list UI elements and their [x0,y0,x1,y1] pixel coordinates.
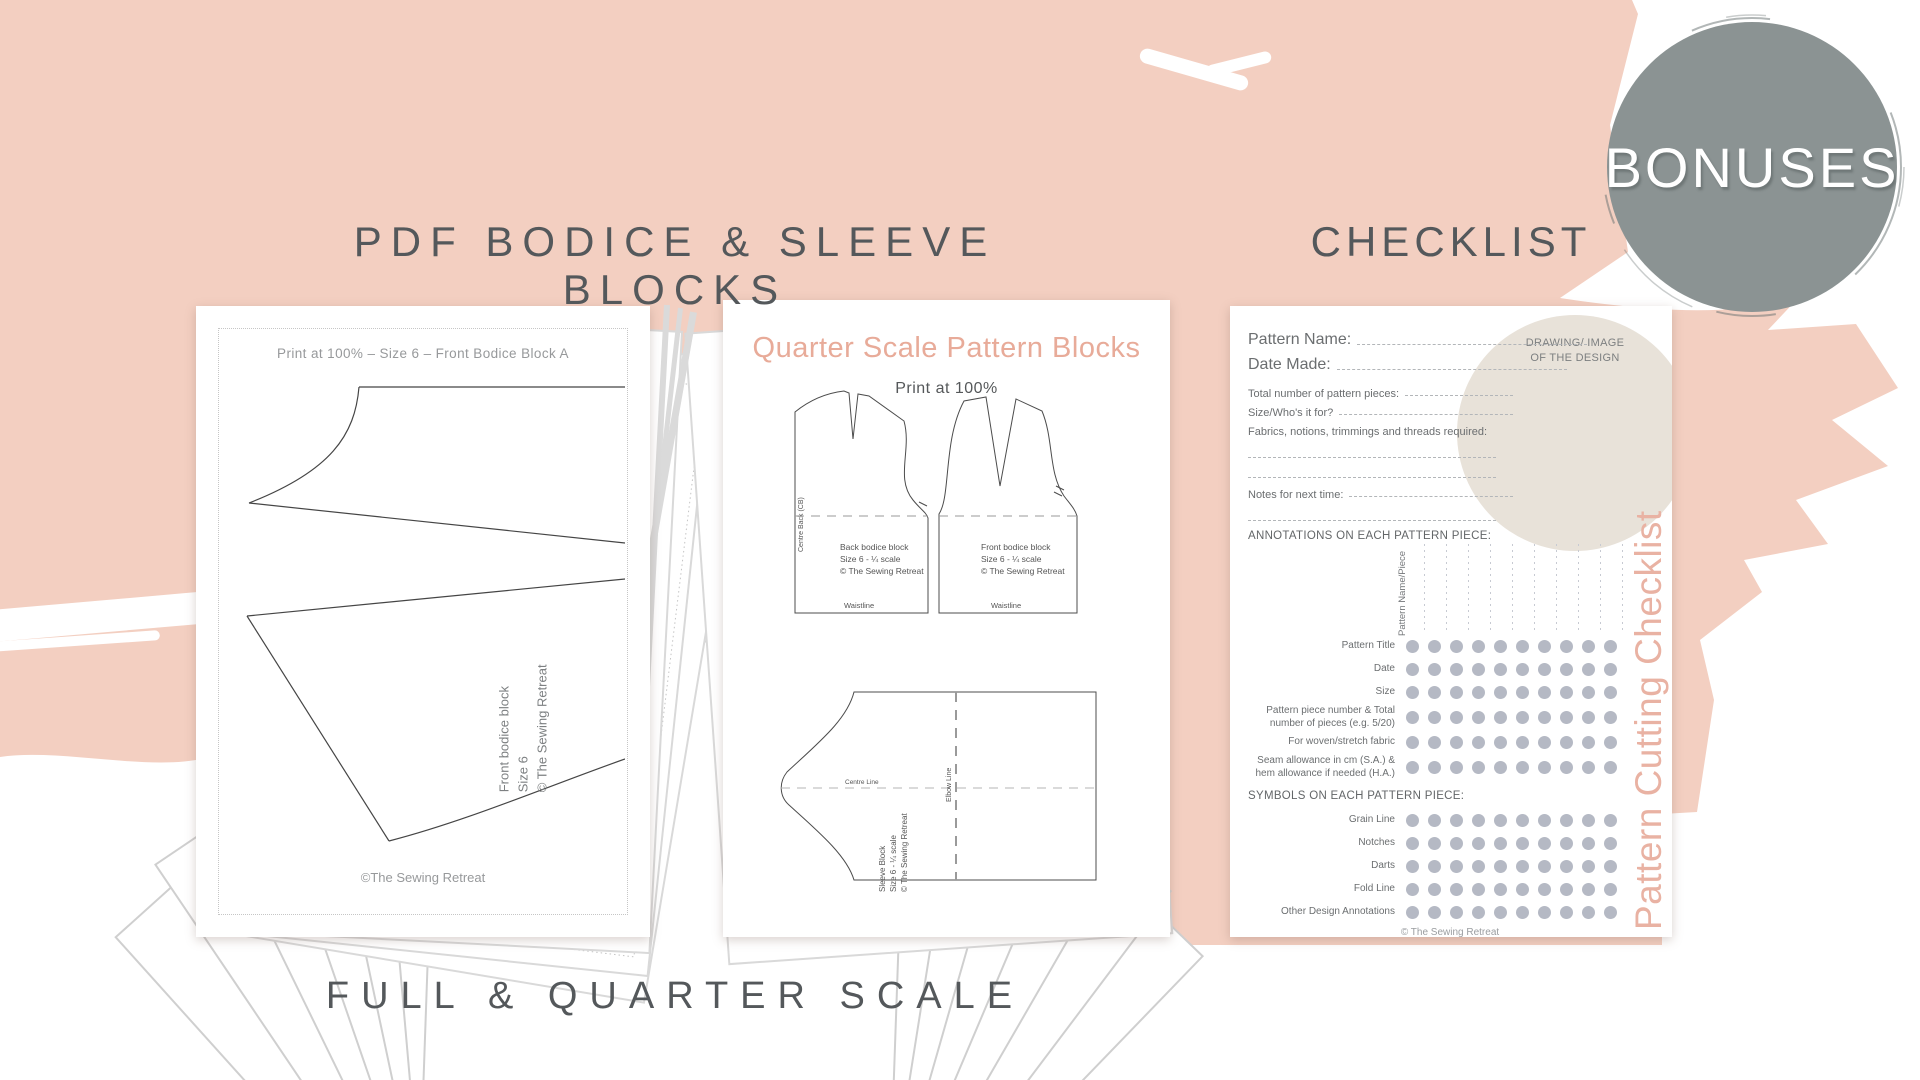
checklist-fields: Pattern Name:Date Made:Total number of p… [1248,324,1513,521]
check-dot [1560,736,1573,749]
check-dot [1516,686,1529,699]
check-dot [1538,686,1551,699]
symbols-title: SYMBOLS ON EACH PATTERN PIECE: [1248,790,1652,802]
check-dot [1604,860,1617,873]
check-dot [1406,814,1419,827]
annotation-rows: Pattern TitleDateSizePattern piece numbe… [1248,636,1652,780]
svg-text:Size 6 - ¼ scale: Size 6 - ¼ scale [840,554,901,564]
check-dot [1538,860,1551,873]
check-dot [1604,736,1617,749]
dot-group [1406,711,1617,724]
check-dot [1604,814,1617,827]
check-dot [1428,837,1441,850]
write-on-dashes [1357,344,1587,345]
check-dot [1494,736,1507,749]
write-on-dashes [1339,414,1513,415]
svg-text:Front bodice block: Front bodice block [981,542,1051,552]
check-dot [1428,906,1441,919]
pattern-cutting-checklist-page: DRAWING/ IMAGE OF THE DESIGN Pattern Nam… [1230,306,1672,937]
check-dot [1428,860,1441,873]
checklist-side-title: Pattern Cutting Checklist [1628,510,1670,930]
check-dot [1472,883,1485,896]
check-dot [1494,883,1507,896]
check-dot [1560,860,1573,873]
svg-text:Waistline: Waistline [844,601,874,610]
check-dot [1406,906,1419,919]
check-dot [1582,883,1595,896]
check-dot [1582,906,1595,919]
column-dotted-line [1622,544,1623,632]
write-on-dashes [1349,496,1513,497]
check-dot [1450,640,1463,653]
check-dot [1582,640,1595,653]
check-dot [1516,883,1529,896]
checklist-row: Notches [1248,833,1652,854]
check-dot [1560,711,1573,724]
column-dotted-line [1534,544,1535,632]
check-dot [1560,883,1573,896]
check-dot [1472,711,1485,724]
check-dot [1494,686,1507,699]
check-dot [1428,663,1441,676]
check-dot [1472,860,1485,873]
svg-text:© The Sewing Retreat: © The Sewing Retreat [900,813,909,892]
check-dot [1560,663,1573,676]
field-label: Total number of pattern pieces: [1248,388,1399,400]
check-dot [1538,837,1551,850]
checklist-row: Date [1248,659,1652,680]
check-dot [1516,663,1529,676]
check-dot [1582,837,1595,850]
row-label: Date [1248,663,1406,676]
check-dot [1494,711,1507,724]
check-dot [1538,814,1551,827]
check-dot [1604,640,1617,653]
row-label: Darts [1248,860,1406,873]
dot-group [1406,860,1617,873]
check-dot [1560,640,1573,653]
row-label: Fold Line [1248,883,1406,896]
promo-graphic: Print at 100% – Size 6 – Front Bodice Bl… [0,0,1920,1080]
field-label: Fabrics, notions, trimmings and threads … [1248,426,1487,438]
row-label: Notches [1248,837,1406,850]
dot-group [1406,761,1617,774]
check-dot [1538,883,1551,896]
row-label: Size [1248,686,1406,699]
check-dot [1472,736,1485,749]
check-dot [1472,761,1485,774]
check-dot [1494,761,1507,774]
column-dotted-line [1600,544,1601,632]
checklist-field: Date Made: [1248,349,1513,374]
svg-text:Centre Line: Centre Line [845,779,879,786]
check-dot [1604,883,1617,896]
check-dot [1472,906,1485,919]
column-dotted-line [1512,544,1513,632]
check-dot [1538,761,1551,774]
checklist-row: Pattern piece number & Total number of p… [1248,705,1652,730]
full-scale-pattern-page: Print at 100% – Size 6 – Front Bodice Bl… [196,306,650,937]
dot-group [1406,663,1617,676]
checklist-row: Fold Line [1248,879,1652,900]
check-dot [1406,860,1419,873]
check-dot [1428,814,1441,827]
check-dot [1472,663,1485,676]
check-dot [1604,686,1617,699]
checklist-row: Darts [1248,856,1652,877]
column-dotted-line [1556,544,1557,632]
check-dot [1450,837,1463,850]
check-dot [1516,640,1529,653]
check-dot [1516,814,1529,827]
field-label: Notes for next time: [1248,489,1343,501]
check-dot [1406,640,1419,653]
column-dotted-line [1424,544,1425,632]
check-dot [1428,686,1441,699]
check-dot [1428,736,1441,749]
check-dot [1494,640,1507,653]
check-dot [1428,883,1441,896]
pattern-piece-label: Front bodice block Size 6 © The Sewing R… [496,632,553,792]
check-dot [1538,736,1551,749]
check-dot [1560,814,1573,827]
annotation-grid: Pattern Name/Piece [1248,542,1652,636]
annotations-title: ANNOTATIONS ON EACH PATTERN PIECE: [1248,530,1652,542]
write-on-line [1248,446,1496,458]
check-dot [1406,736,1419,749]
checklist-row: Seam allowance in cm (S.A.) & hem allowa… [1248,755,1652,780]
check-dot [1406,761,1419,774]
check-dot [1406,883,1419,896]
row-label: For woven/stretch fabric [1248,736,1406,749]
write-on-line [1248,509,1496,521]
check-dot [1516,860,1529,873]
check-dot [1516,711,1529,724]
check-dot [1494,663,1507,676]
check-dot [1494,906,1507,919]
check-dot [1472,640,1485,653]
svg-text:© The Sewing Retreat: © The Sewing Retreat [840,566,924,576]
grid-column-header: Pattern Name/Piece [1397,551,1408,636]
field-label: Date Made: [1248,356,1331,374]
dot-group [1406,837,1617,850]
dot-group [1406,814,1617,827]
svg-text:Centre Back (CB): Centre Back (CB) [798,497,805,552]
check-dot [1604,663,1617,676]
dot-group [1406,640,1617,653]
symbol-rows: Grain LineNotchesDartsFold LineOther Des… [1248,810,1652,923]
column-dotted-line [1468,544,1469,632]
write-on-dashes [1405,395,1513,396]
dotted-border [218,328,628,915]
dot-group [1406,686,1617,699]
field-label: Pattern Name: [1248,331,1351,349]
check-dot [1582,663,1595,676]
brush-ring [1599,14,1905,320]
bonuses-badge: BONUSES [1607,22,1897,312]
check-dot [1538,906,1551,919]
svg-text:Sleeve Block: Sleeve Block [878,845,887,892]
check-dot [1560,686,1573,699]
check-dot [1472,837,1485,850]
check-dot [1450,686,1463,699]
checklist-row: For woven/stretch fabric [1248,732,1652,753]
write-on-dashes [1337,369,1567,370]
checklist-row: Grain Line [1248,810,1652,831]
check-dot [1604,761,1617,774]
heading-full-quarter-scale: FULL & QUARTER SCALE [240,975,1110,1018]
check-dot [1406,663,1419,676]
svg-text:Size 6 - ¼ scale: Size 6 - ¼ scale [981,554,1042,564]
check-dot [1538,663,1551,676]
svg-text:© The Sewing Retreat: © The Sewing Retreat [981,566,1065,576]
checklist-footer: © The Sewing Retreat [1248,927,1652,937]
check-dot [1450,860,1463,873]
heading-pdf-blocks: PDF BODICE & SLEEVE BLOCKS [240,218,1110,314]
check-dot [1494,837,1507,850]
check-dot [1516,736,1529,749]
check-dot [1428,761,1441,774]
check-dot [1450,736,1463,749]
check-dot [1604,711,1617,724]
row-label: Pattern piece number & Total number of p… [1248,705,1406,730]
row-label: Seam allowance in cm (S.A.) & hem allowa… [1248,755,1406,780]
checklist-row: Size [1248,682,1652,703]
check-dot [1450,906,1463,919]
check-dot [1494,814,1507,827]
check-dot [1428,640,1441,653]
check-dot [1472,814,1485,827]
check-dot [1582,761,1595,774]
check-dot [1406,711,1419,724]
check-dot [1406,837,1419,850]
check-dot [1516,837,1529,850]
row-label: Other Design Annotations [1248,906,1406,919]
svg-text:Elbow Line: Elbow Line [946,768,953,802]
quarter-scale-title: Quarter Scale Pattern Blocks [723,332,1170,365]
checklist-row: Pattern Title [1248,636,1652,657]
quarter-scale-subtitle: Print at 100% [723,380,1170,398]
check-dot [1560,906,1573,919]
checklist-field: Fabrics, notions, trimmings and threads … [1248,419,1513,438]
check-dot [1450,711,1463,724]
dot-group [1406,883,1617,896]
column-dotted-line [1490,544,1491,632]
check-dot [1560,761,1573,774]
check-dot [1516,761,1529,774]
checklist-field: Pattern Name: [1248,324,1513,349]
check-dot [1582,814,1595,827]
field-label: Size/Who's it for? [1248,407,1333,419]
check-dot [1428,711,1441,724]
check-dot [1582,860,1595,873]
quarter-scale-pattern-page: Quarter Scale Pattern Blocks Print at 10… [723,300,1170,937]
dot-group [1406,906,1617,919]
check-dot [1538,640,1551,653]
svg-text:Size 6 - ¼ scale: Size 6 - ¼ scale [889,835,898,892]
check-dot [1450,883,1463,896]
check-dot [1582,711,1595,724]
svg-text:Back bodice block: Back bodice block [840,542,909,552]
checklist-content: Pattern Name:Date Made:Total number of p… [1230,306,1672,937]
checklist-row: Other Design Annotations [1248,902,1652,923]
write-on-line [1248,466,1496,478]
full-scale-page-header: Print at 100% – Size 6 – Front Bodice Bl… [196,346,650,361]
checklist-field: Total number of pattern pieces: [1248,381,1513,400]
row-label: Grain Line [1248,814,1406,827]
check-dot [1604,837,1617,850]
check-dot [1450,761,1463,774]
checklist-field: Notes for next time: [1248,482,1513,501]
check-dot [1538,711,1551,724]
check-dot [1560,837,1573,850]
check-dot [1494,860,1507,873]
check-dot [1604,906,1617,919]
column-dotted-line [1446,544,1447,632]
row-label: Pattern Title [1248,640,1406,653]
page-footer: ©The Sewing Retreat [196,870,650,885]
dot-group [1406,736,1617,749]
check-dot [1450,663,1463,676]
column-dotted-line [1578,544,1579,632]
checklist-field: Size/Who's it for? [1248,400,1513,419]
check-dot [1582,736,1595,749]
check-dot [1406,686,1419,699]
svg-text:Waistline: Waistline [991,601,1021,610]
check-dot [1516,906,1529,919]
check-dot [1450,814,1463,827]
check-dot [1582,686,1595,699]
check-dot [1472,686,1485,699]
